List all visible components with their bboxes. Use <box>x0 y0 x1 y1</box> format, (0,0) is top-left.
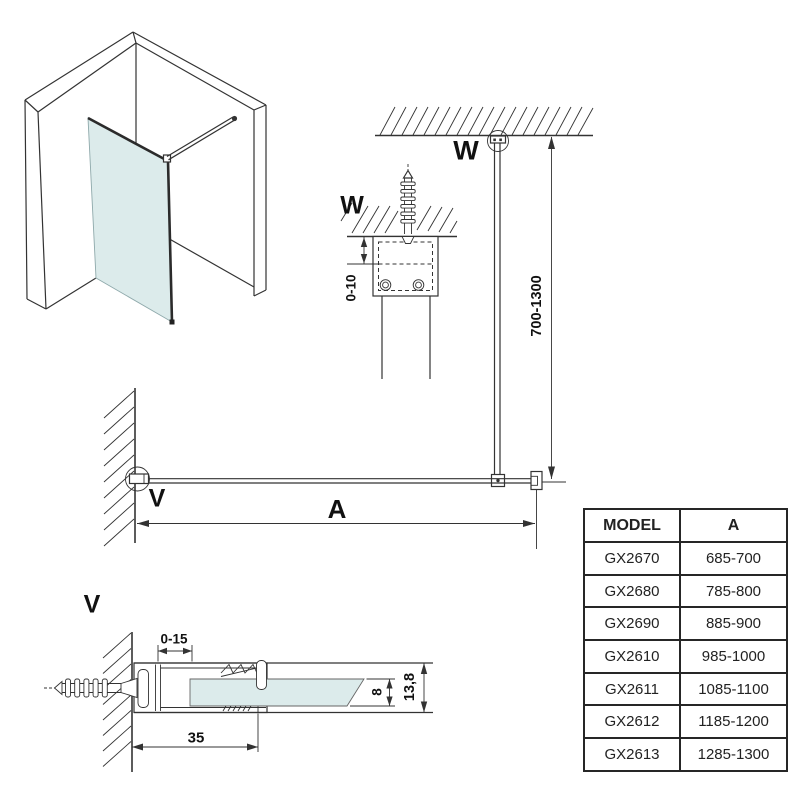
wall-hatching <box>104 391 134 546</box>
model-cell: GX2670 <box>584 542 680 575</box>
table-row: GX2670 685-700 <box>584 542 787 575</box>
support-bar-iso <box>164 116 238 162</box>
support-bar-section <box>495 143 501 475</box>
model-cell: GX2610 <box>584 640 680 673</box>
table-row: GX2610 985-1000 <box>584 640 787 673</box>
dim-text-ceiling-gap: 0-10 <box>344 274 358 301</box>
wall-hatching-detail <box>103 633 131 767</box>
dim-text-glass-inset: 0-15 <box>160 632 187 646</box>
glass-panel-iso <box>88 118 172 322</box>
label-w-main: W <box>453 138 478 165</box>
range-cell: 685-700 <box>680 542 787 575</box>
table-row: GX2690 885-900 <box>584 607 787 640</box>
end-bracket <box>531 472 542 490</box>
table-row: GX2613 1285-1300 <box>584 738 787 771</box>
table-row: GX2680 785-800 <box>584 575 787 608</box>
range-cell: 785-800 <box>680 575 787 608</box>
range-cell: 1185-1200 <box>680 705 787 738</box>
glass-panel-section <box>190 679 364 706</box>
label-dim-a: A <box>328 496 347 522</box>
table-header-row: MODEL A <box>584 509 787 542</box>
dim-text-profile-depth: 35 <box>188 731 205 746</box>
dimension-bar-height <box>548 137 555 480</box>
table-row: GX2612 1185-1200 <box>584 705 787 738</box>
col-header-model: MODEL <box>584 509 680 542</box>
col-header-a: A <box>680 509 787 542</box>
anchor-ribs <box>401 182 415 223</box>
model-cell: GX2680 <box>584 575 680 608</box>
ceiling-hatching <box>380 107 593 135</box>
dim-text-profile-height: 13,8 <box>403 673 418 701</box>
wall-bracket <box>130 474 149 484</box>
range-cell: 985-1000 <box>680 640 787 673</box>
table-row: GX2611 1085-1100 <box>584 673 787 706</box>
label-v-main: V <box>149 487 166 512</box>
model-cell: GX2690 <box>584 607 680 640</box>
dim-text-bar-height: 700-1300 <box>530 275 545 336</box>
range-cell: 1285-1300 <box>680 738 787 771</box>
installation-diagram: W W V V A 700-1300 0-10 0-15 35 8 13,8 M… <box>0 0 800 800</box>
model-cell: GX2613 <box>584 738 680 771</box>
model-cell: GX2611 <box>584 673 680 706</box>
range-cell: 885-900 <box>680 607 787 640</box>
label-v-detail: V <box>84 593 101 618</box>
dim-text-glass-thickness: 8 <box>370 688 384 696</box>
model-table: MODEL A GX2670 685-700 GX2680 785-800 GX… <box>583 508 788 772</box>
range-cell: 1085-1100 <box>680 673 787 706</box>
dimension-glass-inset <box>158 645 192 662</box>
label-w-detail: W <box>340 194 364 219</box>
detail-v-view <box>44 632 433 772</box>
ceiling-section <box>375 107 593 487</box>
dimension-profile-height <box>421 663 427 713</box>
model-cell: GX2612 <box>584 705 680 738</box>
iso-view <box>25 32 266 325</box>
wall-anchor <box>44 679 137 698</box>
